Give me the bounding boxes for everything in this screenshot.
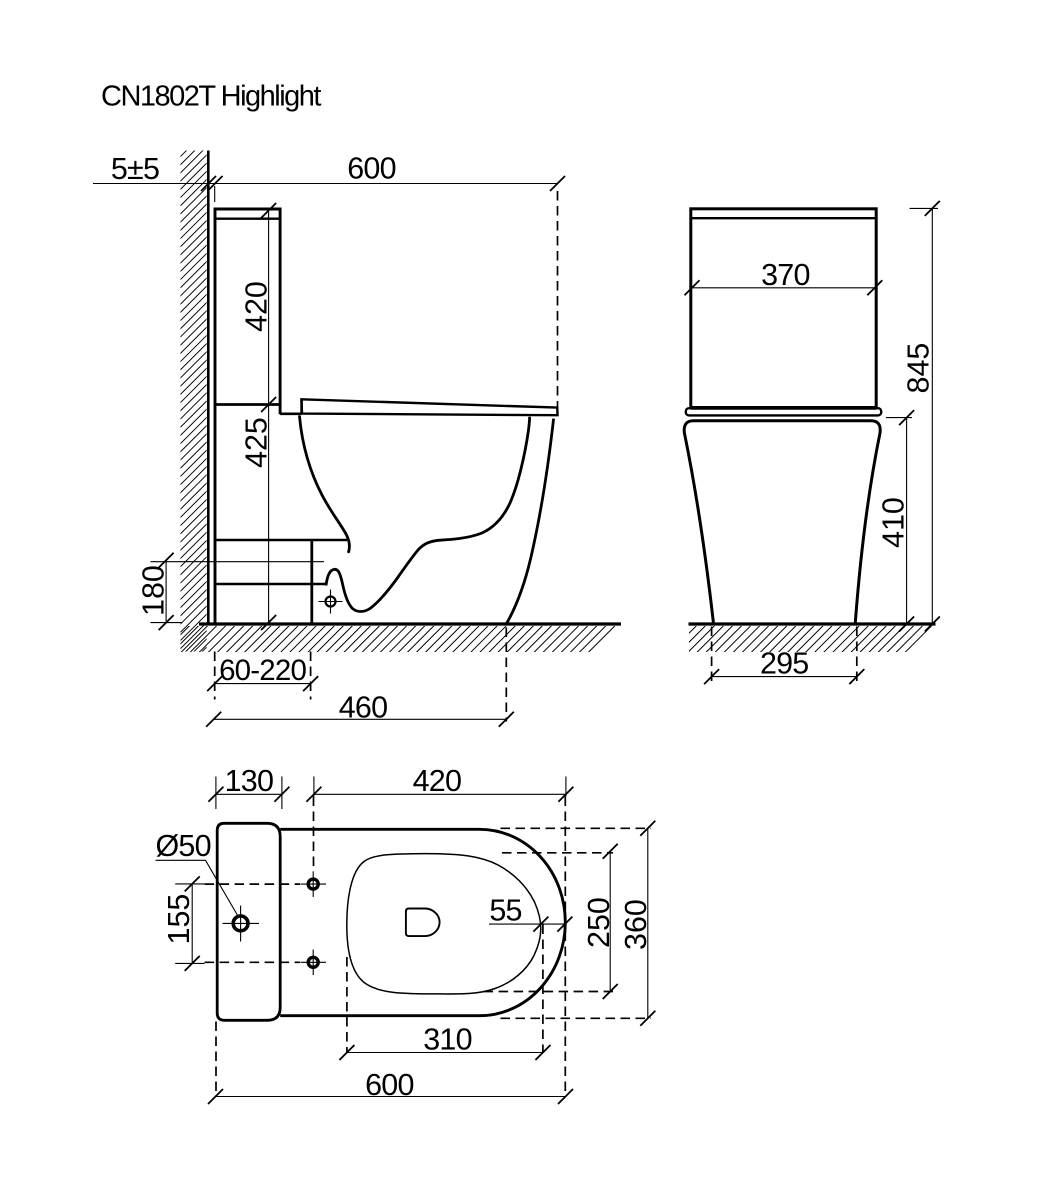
svg-text:295: 295 xyxy=(760,647,809,681)
svg-text:60-220: 60-220 xyxy=(219,654,306,687)
svg-text:600: 600 xyxy=(347,152,396,186)
svg-text:180: 180 xyxy=(137,565,171,616)
svg-text:420: 420 xyxy=(413,764,462,798)
svg-text:460: 460 xyxy=(339,691,388,725)
svg-text:CN1802T Highlight: CN1802T Highlight xyxy=(101,81,321,113)
svg-text:845: 845 xyxy=(902,343,936,394)
svg-text:Ø50: Ø50 xyxy=(156,829,211,863)
svg-text:155: 155 xyxy=(162,894,196,945)
svg-text:250: 250 xyxy=(582,897,616,948)
svg-text:55: 55 xyxy=(489,894,521,928)
svg-text:425: 425 xyxy=(240,417,274,468)
svg-text:5±5: 5±5 xyxy=(111,152,159,186)
svg-text:420: 420 xyxy=(240,281,274,332)
svg-text:600: 600 xyxy=(365,1068,414,1102)
svg-text:410: 410 xyxy=(876,497,910,548)
svg-text:130: 130 xyxy=(225,764,274,798)
svg-text:310: 310 xyxy=(423,1023,472,1057)
svg-text:370: 370 xyxy=(761,258,810,292)
svg-text:360: 360 xyxy=(619,899,653,950)
